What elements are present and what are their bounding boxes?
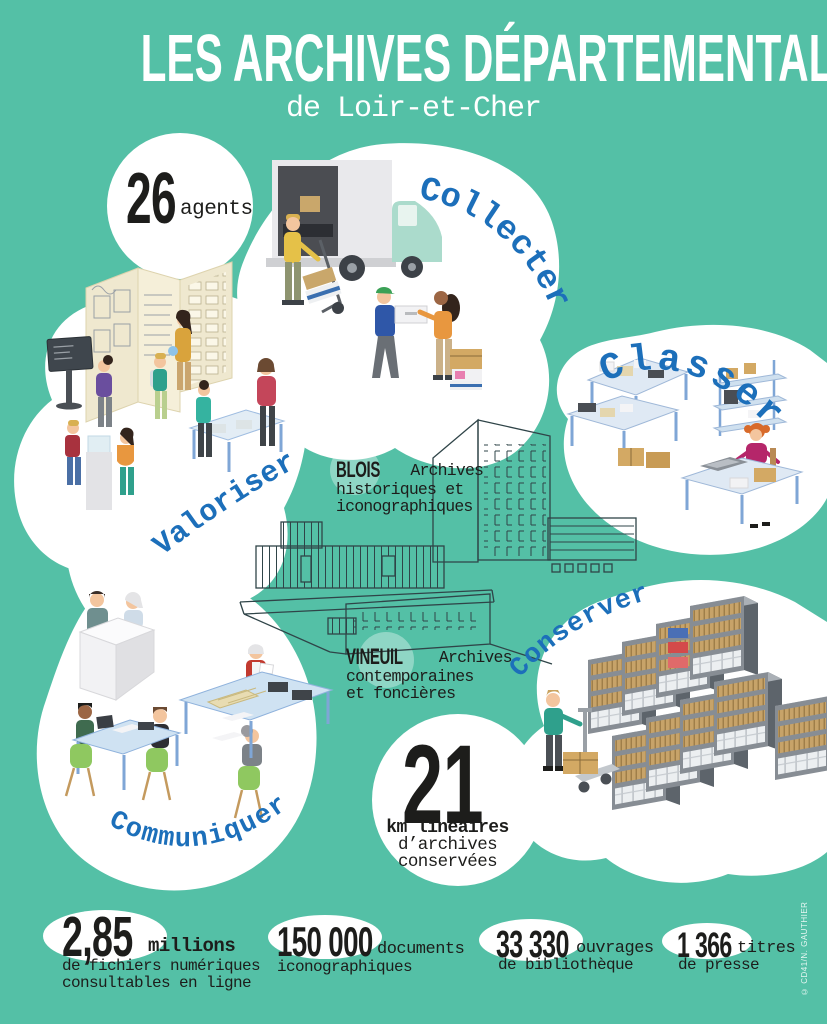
site-vineuil-line3: et foncières (346, 685, 512, 703)
stat-suffix: documents (377, 941, 464, 958)
shelf-unit (690, 596, 758, 680)
site-vineuil-name: VINEUIL (346, 648, 403, 666)
colorful-shelf-accent (668, 628, 688, 668)
km-caption: km linéaires d’archives conservées (350, 820, 545, 871)
km-line3: conservées (350, 854, 545, 871)
site-vineuil-line2: contemporaines (346, 668, 512, 686)
site-blois-type: Archives (410, 461, 483, 480)
stat-desc: de bibliothèque (498, 957, 633, 974)
infographic-poster: Collecter Classer Valoriser Conserver Co… (0, 0, 827, 1024)
site-blois-line2: historiques et (336, 481, 483, 499)
stat-desc: de presse (678, 957, 759, 974)
stat-desc: de fichiers numériques consultables en l… (62, 958, 260, 991)
stat-suffix: ouvrages (576, 940, 654, 957)
stat-value: 150 000 (277, 921, 373, 963)
stat-desc-line: de presse (678, 957, 759, 974)
site-blois-line3: iconographiques (336, 498, 483, 516)
stat-suffix: titres (737, 940, 795, 957)
page-title: LES ARCHIVES DÉPARTEMENTALES (141, 24, 687, 91)
pedestal-case (86, 436, 112, 510)
shelf-unit (775, 696, 827, 780)
site-blois: BLOIS Archives historiques et iconograph… (336, 461, 483, 516)
page-subtitle: de Loir-et-Cher (0, 94, 827, 124)
stat-desc-line: iconographiques (277, 959, 412, 976)
agents-count: 26 (126, 163, 176, 235)
agents-label: agents (180, 199, 253, 220)
stat-suffix: millions (148, 937, 235, 956)
box-stack (450, 349, 482, 390)
site-blois-name: BLOIS (336, 461, 380, 479)
site-vineuil-line1: VINEUIL Archives (346, 648, 512, 668)
stat-desc-line: de fichiers numériques (62, 958, 260, 975)
shelf-unit (714, 672, 782, 756)
site-blois-line1: BLOIS Archives (336, 461, 483, 481)
site-vineuil-type: Archives (439, 648, 512, 667)
stat-desc-line: consultables en ligne (62, 975, 260, 992)
site-vineuil: VINEUIL Archives contemporaines et fonci… (346, 648, 512, 703)
stat-desc: iconographiques (277, 959, 412, 976)
stat-desc-line: de bibliothèque (498, 957, 633, 974)
credit-line: © CD41/N. GAUTHIER (801, 884, 809, 996)
